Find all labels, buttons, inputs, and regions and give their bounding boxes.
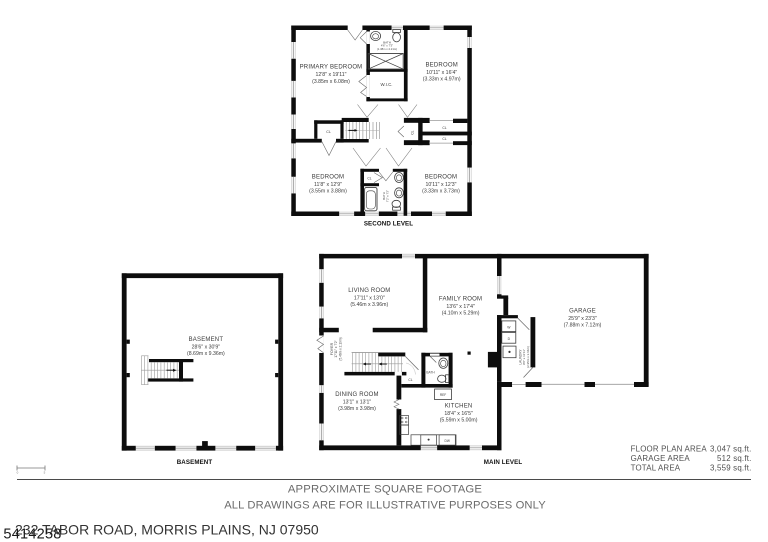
svg-text:CL: CL (442, 137, 446, 141)
svg-text:(2.95m x 3.64m): (2.95m x 3.64m) (526, 346, 530, 368)
svg-text:(1.38m x 2.21m): (1.38m x 2.21m) (377, 47, 397, 51)
svg-text:28'6" x 30'9": 28'6" x 30'9" (192, 344, 221, 350)
svg-text:10'11" x 12'3": 10'11" x 12'3" (426, 182, 457, 188)
svg-text:(5.46m x 2.19m): (5.46m x 2.19m) (338, 337, 342, 360)
svg-text:ALL DRAWINGS ARE FOR ILLUSTRAT: ALL DRAWINGS ARE FOR ILLUSTRATIVE PURPOS… (224, 500, 546, 512)
svg-text:KITCHEN: KITCHEN (445, 404, 473, 410)
svg-text:3,047 sq.ft.: 3,047 sq.ft. (710, 445, 751, 454)
svg-text:BATH: BATH (426, 371, 435, 375)
svg-text:(3.98m x 3.98m): (3.98m x 3.98m) (338, 406, 376, 412)
svg-text:CL: CL (326, 130, 331, 134)
svg-text:512 sq.ft.: 512 sq.ft. (717, 454, 751, 463)
svg-text:3,559 sq.ft.: 3,559 sq.ft. (710, 464, 751, 473)
svg-text:17'11" x 13'0": 17'11" x 13'0" (354, 295, 385, 301)
svg-text:GARAGE: GARAGE (569, 309, 596, 315)
svg-text:W.I.C.: W.I.C. (381, 82, 393, 87)
svg-text:FAMILY ROOM: FAMILY ROOM (439, 297, 482, 303)
svg-text:DINING ROOM: DINING ROOM (335, 392, 379, 398)
svg-text:FLOOR PLAN AREA: FLOOR PLAN AREA (631, 445, 708, 454)
svg-text:(7.88m x 7.12m): (7.88m x 7.12m) (564, 323, 602, 329)
svg-text:PRIMARY BEDROOM: PRIMARY BEDROOM (300, 65, 363, 71)
svg-text:REF: REF (440, 393, 446, 397)
svg-text:BEDROOM: BEDROOM (425, 175, 457, 181)
svg-text:BEDROOM: BEDROOM (312, 175, 344, 181)
svg-text:12'8" x 19'11": 12'8" x 19'11" (316, 72, 347, 78)
svg-text:7'2" x 7'3": 7'2" x 7'3" (386, 190, 390, 202)
svg-text:TOTAL AREA: TOTAL AREA (631, 464, 681, 473)
svg-text:CL: CL (442, 126, 446, 130)
svg-text:DW: DW (445, 439, 450, 443)
svg-text:MAIN LEVEL: MAIN LEVEL (484, 459, 523, 466)
svg-text:(3.55m x 3.88m): (3.55m x 3.88m) (309, 189, 347, 195)
svg-text:LIVING ROOM: LIVING ROOM (348, 288, 390, 294)
svg-text:13'6" x 17'4": 13'6" x 17'4" (446, 304, 475, 310)
svg-text:(3.33m x 3.73m): (3.33m x 3.73m) (422, 189, 460, 195)
svg-text:(5.59m x 5.00m): (5.59m x 5.00m) (440, 418, 478, 424)
svg-text:GARAGE AREA: GARAGE AREA (631, 454, 691, 463)
svg-text:(8.69m x 9.36m): (8.69m x 9.36m) (187, 351, 225, 357)
svg-text:25'9" x 23'3": 25'9" x 23'3" (568, 316, 597, 322)
svg-text:CL: CL (367, 177, 371, 181)
svg-text:10'11" x 16'4": 10'11" x 16'4" (426, 70, 457, 76)
svg-text:BASEMENT: BASEMENT (177, 459, 213, 466)
svg-text:SECOND LEVEL: SECOND LEVEL (364, 220, 413, 227)
svg-text:18'4" x 16'5": 18'4" x 16'5" (444, 411, 473, 417)
svg-text:BASEMENT: BASEMENT (189, 337, 224, 343)
svg-text:13'1" x 13'1": 13'1" x 13'1" (343, 399, 372, 405)
svg-text:(4.10m x 5.29m): (4.10m x 5.29m) (442, 311, 480, 317)
svg-text:5414258: 5414258 (3, 526, 61, 542)
svg-text:CL: CL (408, 378, 412, 382)
svg-text:(3.85m x 6.08m): (3.85m x 6.08m) (312, 79, 350, 85)
svg-text:APPROXIMATE SQUARE FOOTAGE: APPROXIMATE SQUARE FOOTAGE (288, 484, 483, 496)
svg-text:(5.46m x 3.96m): (5.46m x 3.96m) (350, 302, 388, 308)
svg-text:(3.33m x 4.97m): (3.33m x 4.97m) (423, 77, 461, 83)
svg-text:CL: CL (411, 130, 415, 134)
svg-text:BEDROOM: BEDROOM (425, 63, 457, 69)
svg-text:11'8" x 12'9": 11'8" x 12'9" (314, 182, 342, 188)
